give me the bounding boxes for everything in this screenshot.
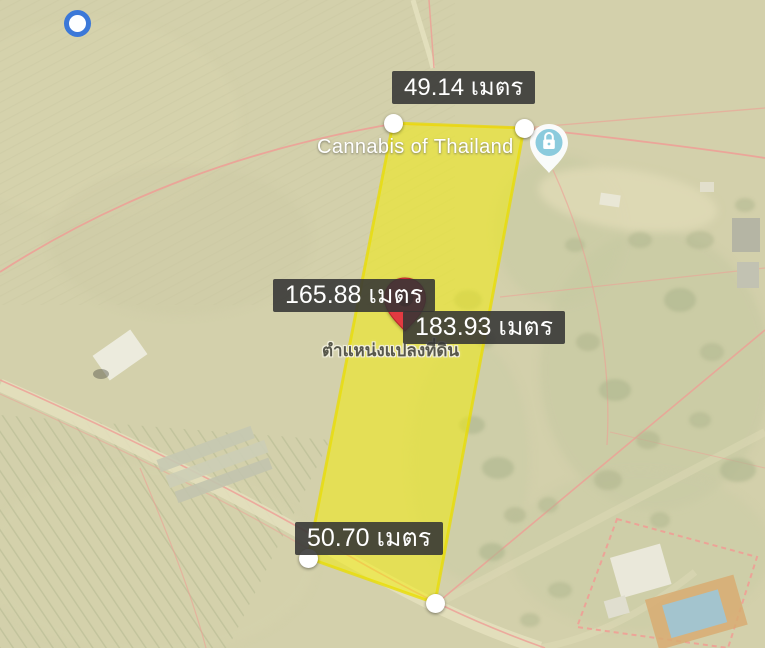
place-label[interactable]: Cannabis of Thailand: [317, 136, 514, 159]
circle-button[interactable]: [64, 10, 91, 37]
lock-place-pin-icon: [528, 123, 570, 175]
satellite-map-view[interactable]: Cannabis of Thailand ตำแหน่งแปลงที่ดิน 4…: [0, 0, 765, 648]
measurement-label-bottom: 50.70 เมตร: [295, 522, 443, 555]
parcel-vertex-handle-top-right[interactable]: [515, 119, 534, 138]
parcel-vertex-handle-bottom-right[interactable]: [426, 594, 445, 613]
place-pin[interactable]: [528, 123, 570, 175]
measurement-label-right: 183.93 เมตร: [403, 311, 565, 344]
parcel-vertex-handle-top-left[interactable]: [384, 114, 403, 133]
measurement-label-top: 49.14 เมตร: [392, 71, 535, 104]
measurement-label-left: 165.88 เมตร: [273, 279, 435, 312]
